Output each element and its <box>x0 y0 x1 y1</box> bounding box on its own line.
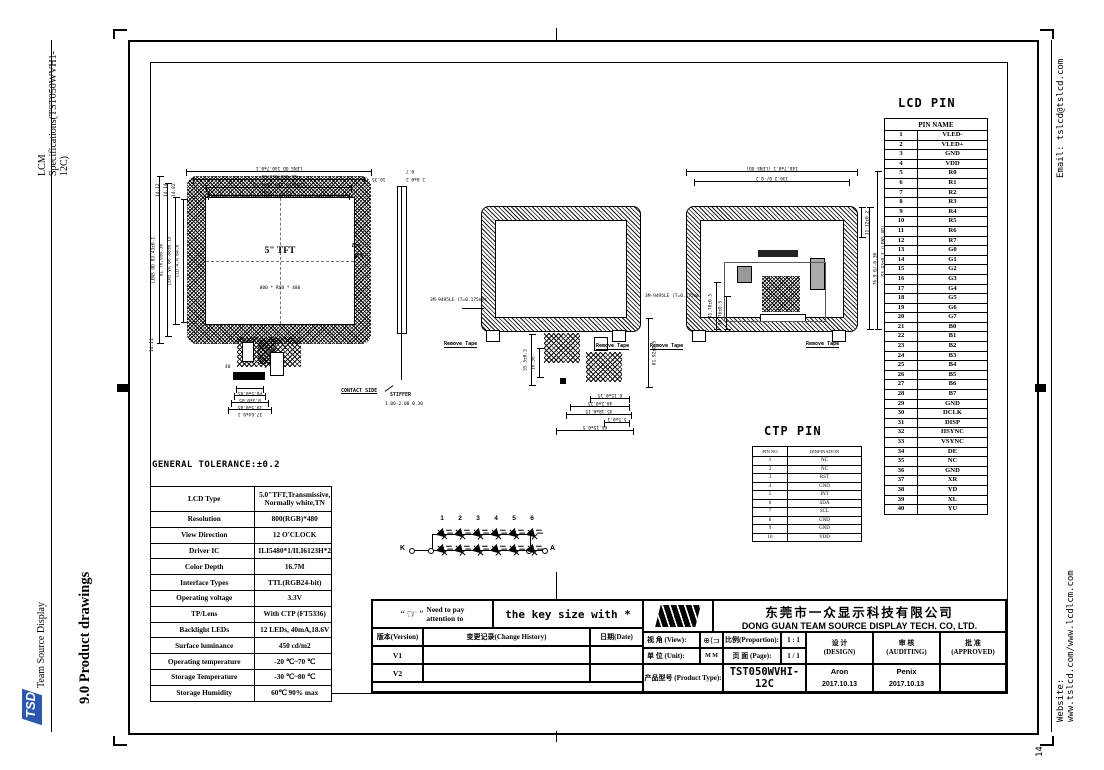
table-cell: G6 <box>918 303 988 313</box>
corner-mark <box>1040 736 1054 746</box>
lcd-pin-title: LCD PIN <box>898 96 956 110</box>
table-row: 29GND <box>885 399 988 409</box>
table-cell: 25 <box>885 361 918 371</box>
table-row: Surface luminance450 cd/m2 <box>151 638 332 654</box>
side-profile <box>397 186 407 334</box>
table-cell: R4 <box>918 207 988 217</box>
dimension-label: 0.7 <box>406 168 414 173</box>
table-cell: YU <box>918 505 988 515</box>
table-header: PIN NAME <box>885 119 988 131</box>
table-cell: 5.0"TFT,Transmissive, Normally white,TN <box>255 487 332 512</box>
table-row: Color Depth16.7M <box>151 559 332 575</box>
table-row: 8R3 <box>885 198 988 208</box>
table-cell: Backlight LEDs <box>151 622 255 638</box>
table-row: 34DE <box>885 447 988 457</box>
table-cell: Driver IC <box>151 543 255 559</box>
table-cell: 12 <box>885 236 918 246</box>
table-cell: Storage Temperature <box>151 669 255 685</box>
dimension-line: 146.7±0.1 (LENS OD) <box>686 171 858 172</box>
fpc-component <box>242 342 254 362</box>
table-cell: 5 <box>885 169 918 179</box>
fpc-tail-line <box>401 332 402 380</box>
led-icon <box>472 544 485 557</box>
dimension-line: 66.15±0.5 <box>556 430 634 431</box>
led-icon <box>526 528 539 541</box>
dimension-line: 36.76±0.5 <box>726 296 727 330</box>
table-cell: 2 <box>885 140 918 150</box>
attention-text: Need to pay attention to <box>426 605 464 623</box>
table-cell: Interface Types <box>151 575 255 591</box>
dimension-line: 45.18±0.15 <box>566 414 632 415</box>
table-cell: 6 <box>885 178 918 188</box>
table-row: 1NC <box>753 457 862 466</box>
dimension-line: 130.2 0/-0.2 <box>694 181 850 182</box>
table-cell: B0 <box>918 322 988 332</box>
corner-mark <box>1040 29 1054 39</box>
remove-tape-label: Remove Tape <box>596 343 629 350</box>
table-row: 6R1 <box>885 178 988 188</box>
company-cell: 东莞市一众显示科技有限公司 DONG GUAN TEAM SOURCE DISP… <box>713 600 1006 632</box>
contact-side-label: CONTACT SIDE <box>341 388 377 394</box>
table-cell: SDA <box>788 499 862 508</box>
history-cell <box>423 646 590 664</box>
quote-mark: ” <box>419 609 423 619</box>
table-row: 18G5 <box>885 294 988 304</box>
left-rule <box>51 40 52 732</box>
led-icon <box>490 528 503 541</box>
table-cell: 21 <box>885 322 918 332</box>
table-cell: SCL <box>788 508 862 517</box>
table-cell: 17 <box>885 284 918 294</box>
table-row: 14G1 <box>885 255 988 265</box>
fpc-outline <box>724 262 826 322</box>
table-cell: NC <box>788 457 862 466</box>
table-cell: VDD <box>788 533 862 542</box>
auditing-header: 审 核 (AUDITING) <box>873 632 940 664</box>
dimension-label: 1.00-2.00 0.30 <box>385 402 423 407</box>
table-row: Resolution800(RGB)*480 <box>151 512 332 528</box>
page-value: 1 / 1 <box>781 648 806 664</box>
table-row: 33VSYNC <box>885 438 988 448</box>
table-cell: 16 <box>885 274 918 284</box>
dimension-label: 14.12 <box>156 183 161 197</box>
table-row: 23B2 <box>885 342 988 352</box>
date-header: 日期(Date) <box>590 628 643 646</box>
table-cell: GND <box>918 399 988 409</box>
table-row: 5INT <box>753 491 862 500</box>
table-cell: 35 <box>885 457 918 467</box>
mounting-tab <box>692 330 706 342</box>
table-cell: 24 <box>885 351 918 361</box>
led-icon <box>454 544 467 557</box>
leader-line <box>462 308 484 309</box>
front-view-screen: 5" TFT 800 * RGB * 480 <box>205 197 355 325</box>
table-cell: 2 <box>753 465 788 474</box>
table-cell: R6 <box>918 226 988 236</box>
tsd-logo: TSD <box>18 692 48 722</box>
dimension-line: P0.5±0.05 <box>236 388 264 389</box>
table-cell: 8 <box>885 198 918 208</box>
date-cell <box>590 664 643 682</box>
unit-label: 单 位 (Unit): <box>643 648 700 664</box>
table-cell: TP/Lens <box>151 606 255 622</box>
table-cell: 10 <box>885 217 918 227</box>
proportion-label: 比例(Proportion): <box>723 632 781 648</box>
table-row: 11R6 <box>885 226 988 236</box>
table-row: 10R5 <box>885 217 988 227</box>
table-cell: R0 <box>918 169 988 179</box>
dimension-line: 6.15±0.15 <box>590 398 630 399</box>
led-icon <box>436 544 449 557</box>
pin-label: 40 <box>225 365 230 370</box>
led-number: 6 <box>527 515 537 522</box>
led-icon <box>526 544 539 557</box>
table-row: 8GND <box>753 516 862 525</box>
tsd-logo-text: TSD <box>23 692 38 718</box>
ctp-connector <box>270 352 284 376</box>
screen-size-label: 5" TFT <box>206 246 354 256</box>
table-cell: XL <box>918 495 988 505</box>
table-cell: B6 <box>918 380 988 390</box>
unit-value: M M <box>700 648 723 664</box>
dimension-line: 37.64±0.1 <box>228 409 272 410</box>
table-cell: 31 <box>885 418 918 428</box>
table-row: 12R7 <box>885 236 988 246</box>
table-cell: 9 <box>753 525 788 534</box>
dimension-line: 0.3±0.05 <box>234 395 266 396</box>
table-cell: View Direction <box>151 527 255 543</box>
product-type-value: TST050WVHI-12C <box>723 664 806 692</box>
section-title: 9.0 Product drawings <box>77 554 94 704</box>
table-cell: RST <box>788 474 862 483</box>
led-icon <box>454 528 467 541</box>
table-cell: 20 <box>885 313 918 323</box>
table-row: 9R4 <box>885 207 988 217</box>
table-cell: VLED- <box>918 131 988 141</box>
table-cell: 28 <box>885 390 918 400</box>
email-text: Email: tslcd@tslcd.com <box>1056 38 1066 178</box>
dimension-label: 2.0±0.2 <box>406 176 425 181</box>
dimension-line: LENS VA 108.08±0.15 <box>206 187 352 188</box>
table-header: PIN NO <box>753 447 788 457</box>
table-cell: 38 <box>885 485 918 495</box>
edge-tick <box>556 731 557 742</box>
dimension-label: 14.14 <box>164 183 169 197</box>
table-row: 3RST <box>753 474 862 483</box>
table-row: 19G6 <box>885 303 988 313</box>
table-header: DINFINATION <box>788 447 862 457</box>
history-header: 变更记录(Change History) <box>423 628 590 646</box>
table-row: 32HSYNC <box>885 428 988 438</box>
approved-cell <box>940 664 1006 692</box>
version-header: 版本(Version) <box>372 628 423 646</box>
table-cell: R3 <box>918 198 988 208</box>
table-cell: 26 <box>885 370 918 380</box>
table-cell: G7 <box>918 313 988 323</box>
table-row: 36GND <box>885 466 988 476</box>
quote-mark: “ <box>401 609 405 619</box>
table-cell: 36 <box>885 466 918 476</box>
table-row: 31DISP <box>885 418 988 428</box>
table-cell: G5 <box>918 294 988 304</box>
table-cell: -20 ℃~70 ℃ <box>255 654 332 670</box>
table-cell: Color Depth <box>151 559 255 575</box>
edge-mark <box>1035 384 1046 392</box>
remove-tape-label: Remove Tape <box>650 343 683 350</box>
table-row: 25B4 <box>885 361 988 371</box>
anode-label: A <box>550 545 555 552</box>
company-name-cn: 东莞市一众显示科技有限公司 <box>765 602 954 621</box>
edge-tick <box>556 28 557 40</box>
table-cell: G1 <box>918 255 988 265</box>
table-row: LCD Type5.0"TFT,Transmissive, Normally w… <box>151 487 332 512</box>
table-cell: VDD <box>918 159 988 169</box>
stiffer-label: STIFFER <box>390 392 411 398</box>
table-cell: 22 <box>885 332 918 342</box>
table-cell: 32 <box>885 428 918 438</box>
table-cell: -30 ℃~80 ℃ <box>255 669 332 685</box>
table-cell: 39 <box>885 495 918 505</box>
led-icon <box>436 528 449 541</box>
table-cell: 1 <box>885 131 918 141</box>
dimension-label: 14.11 <box>150 338 155 352</box>
table-row: 3GND <box>885 150 988 160</box>
edge-mark <box>117 384 128 392</box>
screen-resolution-label: 800 * RGB * 480 <box>206 286 354 291</box>
website-text: Website: www.tslcd.com/www.lcdlcm.com <box>1056 542 1076 722</box>
table-header-row: PIN NAME <box>885 119 988 131</box>
design-date: 2017.10.13 <box>806 678 873 692</box>
led-number: 3 <box>473 515 483 522</box>
tape-spec-label: 3M-9495LE (T=0.175mm) <box>430 298 487 303</box>
table-row: 28B7 <box>885 390 988 400</box>
table-cell: 3 <box>753 474 788 483</box>
table-cell: B5 <box>918 370 988 380</box>
table-cell: R2 <box>918 188 988 198</box>
table-row: 35NC <box>885 457 988 467</box>
table-cell: 450 cd/m2 <box>255 638 332 654</box>
led-number: 1 <box>437 515 447 522</box>
tolerance-title: GENERAL TOLERANCE:±0.2 <box>152 460 280 470</box>
table-cell: 15 <box>885 265 918 275</box>
dimension-line: 16.56 <box>539 348 540 378</box>
dimension-line: 41.78±0.5 <box>716 282 717 330</box>
table-cell: VSYNC <box>918 438 988 448</box>
table-row: 2VLED+ <box>885 140 988 150</box>
table-cell: NC <box>918 457 988 467</box>
pin-label: 1 <box>264 365 267 370</box>
side-profile-line <box>401 186 402 332</box>
table-cell: GND <box>918 466 988 476</box>
table-cell: 4 <box>885 159 918 169</box>
led-icon <box>508 528 521 541</box>
table-cell: 37 <box>885 476 918 486</box>
table-cell: 8 <box>753 516 788 525</box>
table-cell: 23 <box>885 342 918 352</box>
dimension-line: 76.9 0/-0.30 <box>869 207 870 330</box>
table-row: 1VLED- <box>885 131 988 141</box>
table-cell: 29 <box>885 399 918 409</box>
table-row: 27B6 <box>885 380 988 390</box>
table-row: 10VDD <box>753 533 862 542</box>
table-row: 13G0 <box>885 246 988 256</box>
table-cell: XR <box>918 476 988 486</box>
table-row: 7SCL <box>753 508 862 517</box>
remove-tape-label: Remove Tape <box>444 341 477 348</box>
empty-row <box>372 682 643 692</box>
table-row: 7R2 <box>885 188 988 198</box>
table-cell: 7 <box>885 188 918 198</box>
pin-label: 1 <box>284 346 287 351</box>
lcd-connector <box>233 372 265 380</box>
page-label: 页 面 (Page): <box>723 648 781 664</box>
table-row: 24B3 <box>885 351 988 361</box>
table-row: 39XL <box>885 495 988 505</box>
dimension-line: 11.12±0.2 <box>861 207 862 238</box>
table-cell: B3 <box>918 351 988 361</box>
table-row: 40YU <box>885 505 988 515</box>
table-cell: B4 <box>918 361 988 371</box>
table-cell: G4 <box>918 284 988 294</box>
view-label: 视 角 (View): <box>643 632 700 648</box>
dimension-line: 81.92±0.5 <box>648 318 649 388</box>
table-cell: ILI5480*1/ILI6123H*2 <box>255 543 332 559</box>
led-icon <box>508 544 521 557</box>
table-row: 16G3 <box>885 274 988 284</box>
fpc-component <box>758 250 798 257</box>
table-cell: DE <box>918 447 988 457</box>
dimension-label: 14.82 <box>172 183 177 197</box>
mounting-tab <box>612 330 626 342</box>
table-cell: 60℃ 90% max <box>255 685 332 701</box>
table-cell: Resolution <box>151 512 255 528</box>
table-cell: Storage Humidity <box>151 685 255 701</box>
table-cell: GND <box>918 150 988 160</box>
table-cell: B7 <box>918 390 988 400</box>
date-cell <box>590 646 643 664</box>
table-cell: INT <box>788 491 862 500</box>
table-cell: 18 <box>885 294 918 304</box>
table-row: Operating temperature-20 ℃~70 ℃ <box>151 654 332 670</box>
led-icon <box>472 528 485 541</box>
table-row: 5R0 <box>885 169 988 179</box>
cathode-label: K <box>400 545 405 552</box>
proportion-value: 1 : 1 <box>781 632 806 648</box>
sidebar-spec-title: LCM Specifications(TST050WVH1-12C) <box>37 40 70 176</box>
table-row: 21B0 <box>885 322 988 332</box>
leader-line <box>556 572 557 600</box>
table-row: View Direction12 O'CLOCK <box>151 527 332 543</box>
dimension-line: BL 130.6±0.30 <box>193 179 365 180</box>
history-cell <box>423 664 590 682</box>
company-logo <box>655 605 700 627</box>
dimension-line: LENS OD 140.7±0.1 <box>186 171 372 172</box>
table-cell: 40 <box>885 505 918 515</box>
version-row-v1: V1 <box>372 646 423 664</box>
product-type-label: 产品型号 (Product Type): <box>643 664 723 692</box>
table-cell: LCD Type <box>151 487 255 512</box>
corner-mark <box>113 736 127 746</box>
table-cell: YD <box>918 485 988 495</box>
table-cell: 12 LEDs, 40mA,18.6V <box>255 622 332 638</box>
auditor-name: Penix <box>873 664 940 678</box>
fpc-block <box>544 333 580 363</box>
table-cell: 11 <box>885 226 918 236</box>
audit-date: 2017.10.13 <box>873 678 940 692</box>
lcd-pin-table: PIN NAME 1VLED-2VLED+3GND4VDD5R06R17R28R… <box>884 118 988 515</box>
table-row: 37XR <box>885 476 988 486</box>
table-row: Storage Humidity60℃ 90% max <box>151 685 332 701</box>
table-cell: 14 <box>885 255 918 265</box>
table-cell: NC <box>788 465 862 474</box>
led-number: 2 <box>455 515 465 522</box>
led-number: 5 <box>509 515 519 522</box>
table-row: 4GND <box>753 482 862 491</box>
dimension-line: 83.43±0.1 (LENS OD) <box>877 171 878 330</box>
pointing-hand-icon: ☞ <box>407 607 418 622</box>
table-row: 26B5 <box>885 370 988 380</box>
table-row: 2NC <box>753 465 862 474</box>
table-cell: GND <box>788 482 862 491</box>
table-cell: 16.7M <box>255 559 332 575</box>
table-row: Driver ICILI5480*1/ILI6123H*2 <box>151 543 332 559</box>
spec-sheet-page: LCM Specifications(TST050WVH1-12C) Team … <box>0 0 1104 770</box>
company-logo-cell <box>643 600 713 632</box>
table-cell: VLED+ <box>918 140 988 150</box>
table-cell: 27 <box>885 380 918 390</box>
dimension-line: 19.5±0.05 <box>231 402 269 403</box>
table-cell: R1 <box>918 178 988 188</box>
table-cell: G3 <box>918 274 988 284</box>
table-cell: 5 <box>753 491 788 500</box>
table-cell: DCLK <box>918 409 988 419</box>
table-row: 30DCLK <box>885 409 988 419</box>
table-row: 6SDA <box>753 499 862 508</box>
table-cell: 13 <box>885 246 918 256</box>
table-row: 22B1 <box>885 332 988 342</box>
mounting-tab <box>486 330 500 342</box>
spec-table: LCD Type5.0"TFT,Transmissive, Normally w… <box>150 486 332 702</box>
led-number: 4 <box>491 515 501 522</box>
table-cell: 4 <box>753 482 788 491</box>
table-cell: R5 <box>918 217 988 227</box>
design-header: 设 计 (DESIGN) <box>806 632 873 664</box>
table-cell: G2 <box>918 265 988 275</box>
dimension-line: LCD A.A 108 <box>208 195 350 196</box>
table-cell: Surface luminance <box>151 638 255 654</box>
led-icon <box>490 544 503 557</box>
fpc-dot <box>560 378 566 384</box>
table-cell: 12 O'CLOCK <box>255 527 332 543</box>
table-row: Operating voltage3.3V <box>151 590 332 606</box>
right-rule <box>1051 40 1052 732</box>
table-row: Interface TypesTTL(RGB24-bit) <box>151 575 332 591</box>
designer-name: Aron <box>806 664 873 678</box>
table-cell: HSYNC <box>918 428 988 438</box>
corner-mark <box>113 29 127 39</box>
table-cell: 7 <box>753 508 788 517</box>
table-cell: G0 <box>918 246 988 256</box>
attention-cell: “ ☞ ” Need to pay attention to <box>372 600 493 628</box>
table-cell: With CTP (FT5336) <box>255 606 332 622</box>
ctp-pin-table: PIN NO DINFINATION 1NC2NC3RST4GND5INT6SD… <box>752 446 862 542</box>
table-header-row: PIN NO DINFINATION <box>753 447 862 457</box>
table-cell: 34 <box>885 447 918 457</box>
table-row: 38YD <box>885 485 988 495</box>
table-row: Backlight LEDs12 LEDs, 40mA,18.6V <box>151 622 332 638</box>
table-row: Storage Temperature-30 ℃~80 ℃ <box>151 669 332 685</box>
table-row: TP/LensWith CTP (FT5336) <box>151 606 332 622</box>
